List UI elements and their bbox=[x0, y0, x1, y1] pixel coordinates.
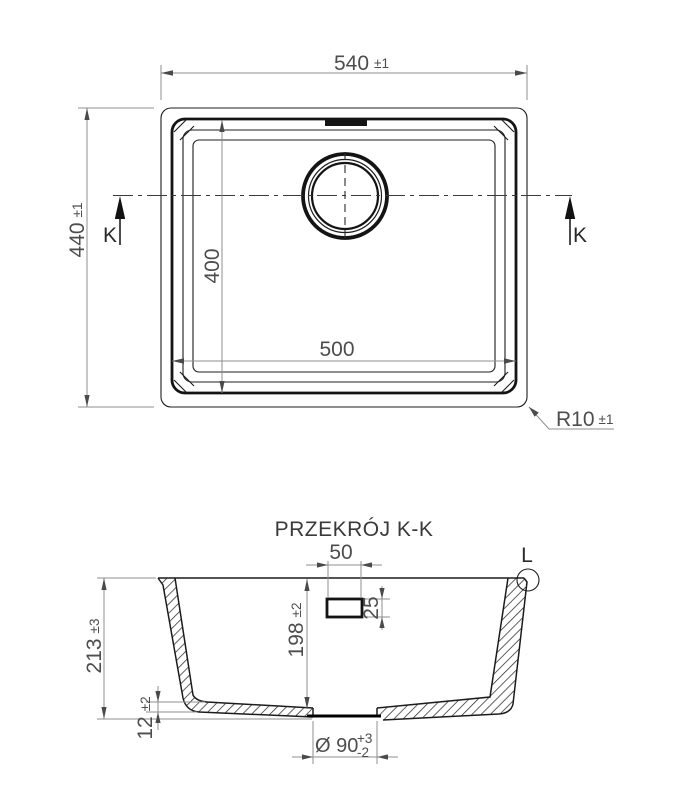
dim-outer-height: 440±1 bbox=[66, 108, 154, 407]
top-view: K K 540±1 440±1 400 500 bbox=[66, 52, 614, 431]
section-marker-left-label: K bbox=[103, 224, 117, 247]
section-marker-left: K bbox=[103, 196, 125, 247]
dim-drain-diameter-label: Ø 90 bbox=[315, 735, 358, 757]
sink-technical-drawing: K K 540±1 440±1 400 500 bbox=[0, 0, 682, 800]
dim-bowl-height-label: 400 bbox=[201, 248, 224, 283]
dim-bowl-depth: 198±2 bbox=[285, 579, 310, 709]
section-arrow-icon bbox=[115, 196, 125, 219]
dim-total-height: 213±3 bbox=[83, 578, 312, 719]
dim-bowl-width: 500 bbox=[172, 338, 516, 364]
dim-base-thickness: 12±2 bbox=[134, 686, 205, 740]
detail-balloon-label: L bbox=[521, 544, 533, 567]
section-title: PRZEKRÓJ K-K bbox=[275, 518, 434, 541]
dim-overflow-width: 50 bbox=[306, 541, 382, 598]
dim-corner-radius-label: R10±1 bbox=[556, 408, 613, 431]
dim-outer-width: 540±1 bbox=[161, 52, 527, 100]
dim-overflow-height-label: 25 bbox=[360, 596, 383, 619]
section-view: PRZEKRÓJ K-K L 50 25 198±2 bbox=[83, 518, 539, 764]
dim-bowl-height: 400 bbox=[201, 120, 225, 393]
overflow-slot bbox=[325, 120, 367, 126]
dim-outer-height-label: 440±1 bbox=[66, 203, 89, 258]
dim-overflow-height: 25 bbox=[360, 586, 390, 630]
dim-base-thickness-label: 12±2 bbox=[134, 696, 157, 739]
section-marker-right-label: K bbox=[573, 224, 587, 247]
overflow-hole bbox=[327, 599, 362, 617]
dim-bowl-width-label: 500 bbox=[319, 338, 354, 361]
dim-drain-diameter: Ø 90 +3 -2 bbox=[292, 721, 398, 764]
dim-outer-width-label: 540±1 bbox=[334, 52, 389, 75]
dim-corner-radius: R10±1 bbox=[529, 407, 614, 431]
dim-drain-tolerance-plus: +3 bbox=[357, 731, 372, 746]
dim-bowl-depth-label: 198±2 bbox=[285, 603, 308, 658]
section-arrow-icon bbox=[565, 196, 575, 219]
dim-drain-tolerance-minus: -2 bbox=[357, 745, 369, 760]
dim-total-height-label: 213±3 bbox=[83, 619, 106, 674]
technical-drawing-page: K K 540±1 440±1 400 500 bbox=[0, 0, 682, 800]
section-marker-right: K bbox=[565, 196, 587, 247]
dim-overflow-width-label: 50 bbox=[329, 541, 352, 564]
